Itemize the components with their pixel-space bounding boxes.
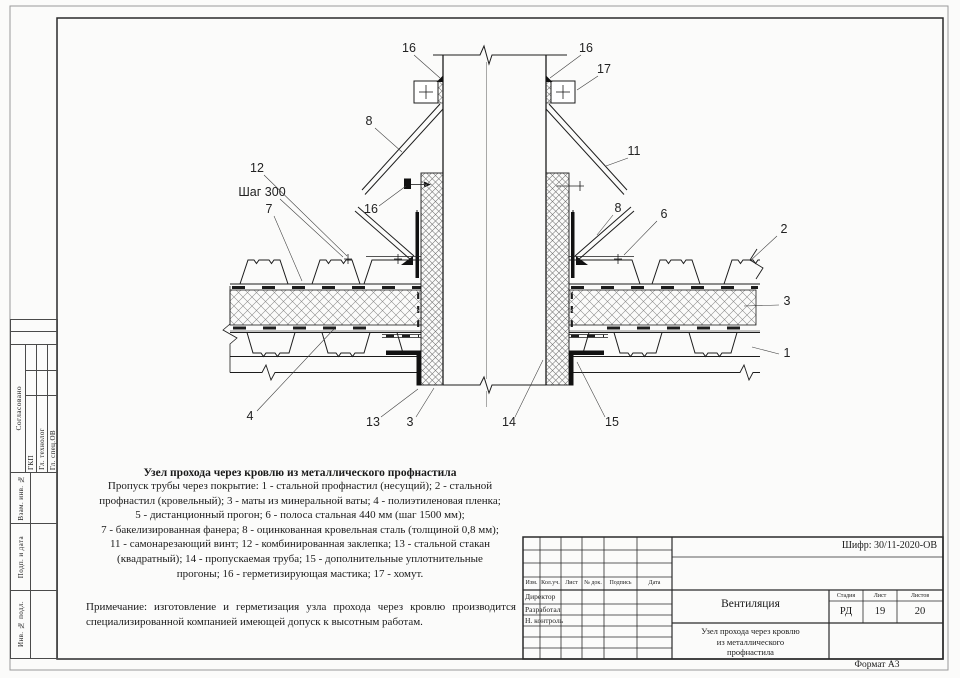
podp-data-value <box>30 523 58 591</box>
clamp-left <box>414 81 443 103</box>
legend-line: (квадратный); 14 - пропускаемая труба; 1… <box>72 552 528 567</box>
drawing-title-cell: Узел прохода через кровлю из металлическ… <box>674 626 827 658</box>
mastic-top-left <box>437 76 444 83</box>
apron-cone <box>362 104 627 195</box>
col-podpis: Подпись <box>604 580 637 586</box>
podp-data-label: Подп. и дата <box>17 534 25 580</box>
vzam-inv-value <box>30 472 58 524</box>
callout-labels: 16 16 17 8 11 12 Шаг 300 7 16 8 6 2 3 1 … <box>238 41 790 429</box>
callout-8-right: 8 <box>615 201 622 215</box>
callout-15: 15 <box>605 415 619 429</box>
role-ncontrol: Н. контроль <box>525 617 563 625</box>
legend-line: Пропуск трубы через покрытие: 1 - стальн… <box>72 479 528 494</box>
stage-header: Стадия <box>829 593 863 599</box>
roof-penetration-detail <box>223 46 763 407</box>
chief-ov-label: Гл. спец.ОВ <box>49 428 57 472</box>
col-koluch: Кол.уч. <box>540 580 561 586</box>
agreed-cell: Согласовано <box>10 344 26 473</box>
stamp-divider <box>25 370 58 371</box>
sleeve <box>416 173 575 385</box>
role-director: Директор <box>525 593 555 601</box>
col-data: Дата <box>637 580 672 586</box>
callout-11: 11 <box>628 144 641 158</box>
roof-left <box>223 254 421 380</box>
col-ndok: № док. <box>582 580 604 586</box>
sheets-total: 20 <box>897 606 943 617</box>
legend-title: Узел прохода через кровлю из металлическ… <box>72 467 528 479</box>
legend-line: 11 - самонарезающий винт; 12 - комбиниро… <box>72 537 528 552</box>
legend-line: прогоны; 16 - герметизирующая мастика; 1… <box>72 567 528 582</box>
inv-podl-cell: Инв. № подл. <box>10 590 31 659</box>
project-name: Вентиляция <box>672 598 829 610</box>
sealing-angles <box>386 351 604 386</box>
left-stamp-row-2 <box>10 331 58 345</box>
agreed-label: Согласовано <box>14 384 23 433</box>
note-block: Примечание: изготовление и герметизация … <box>86 600 516 630</box>
drawing-title-line: профнастила <box>674 647 827 658</box>
sheets-header: Листов <box>897 593 943 599</box>
inv-podl-value <box>30 590 58 659</box>
callout-8-left: 8 <box>366 114 373 128</box>
role-developer: Разработал <box>525 606 561 614</box>
callout-3-bottom: 3 <box>407 415 414 429</box>
vzam-inv-cell: Взам. инв. № <box>10 472 31 524</box>
callout-3-right: 3 <box>784 294 791 308</box>
callout-12: 12 <box>250 161 264 175</box>
sheet-header: Лист <box>863 593 897 599</box>
callout-17: 17 <box>597 62 611 76</box>
callout-16-top-right: 16 <box>579 41 593 55</box>
gkp-label: ГКП <box>27 453 35 472</box>
callout-16-top-left: 16 <box>402 41 416 55</box>
callout-1: 1 <box>784 346 791 360</box>
chief-technologist-label: Гл. технолог <box>38 426 46 472</box>
inv-podl-label: Инв. № подл. <box>17 599 25 649</box>
code-label: Шифр: 30/11-2020-ОВ <box>675 540 937 556</box>
callout-4: 4 <box>247 409 254 423</box>
callout-13: 13 <box>366 415 380 429</box>
sheet-number: 19 <box>863 606 897 617</box>
stamp-divider <box>25 395 58 396</box>
roof-right <box>569 249 763 380</box>
callout-leaders <box>257 55 779 417</box>
clamp-right <box>546 81 575 103</box>
legend-line: 7 - бакелизированная фанера; 8 - оцинков… <box>72 523 528 538</box>
drawing-title-line: Узел прохода через кровлю <box>674 626 827 637</box>
callout-6: 6 <box>661 207 668 221</box>
drawing-sheet: { "sheet": { "format_label": "Формат А3"… <box>0 0 960 678</box>
chief-ov-cell: Гл. спец.ОВ <box>47 344 58 473</box>
callout-14: 14 <box>502 415 516 429</box>
format-label: Формат А3 <box>820 660 934 670</box>
callout-shag-300: Шаг 300 <box>238 185 285 199</box>
drawing-title-line: из металлического <box>674 637 827 648</box>
legend-line: 5 - дистанционный прогон; 6 - полоса ста… <box>72 508 528 523</box>
col-list: Лист <box>561 580 582 586</box>
podp-data-cell: Подп. и дата <box>10 523 31 591</box>
callout-16-mid: 16 <box>364 202 378 216</box>
callout-7: 7 <box>266 202 273 216</box>
vzam-inv-label: Взам. инв. № <box>17 473 25 523</box>
callout-2: 2 <box>781 222 788 236</box>
stage-value: РД <box>829 606 863 617</box>
legend-line: профнастил (кровельный); 3 - маты из мин… <box>72 494 528 509</box>
legend-block: Узел прохода через кровлю из металлическ… <box>72 467 528 581</box>
